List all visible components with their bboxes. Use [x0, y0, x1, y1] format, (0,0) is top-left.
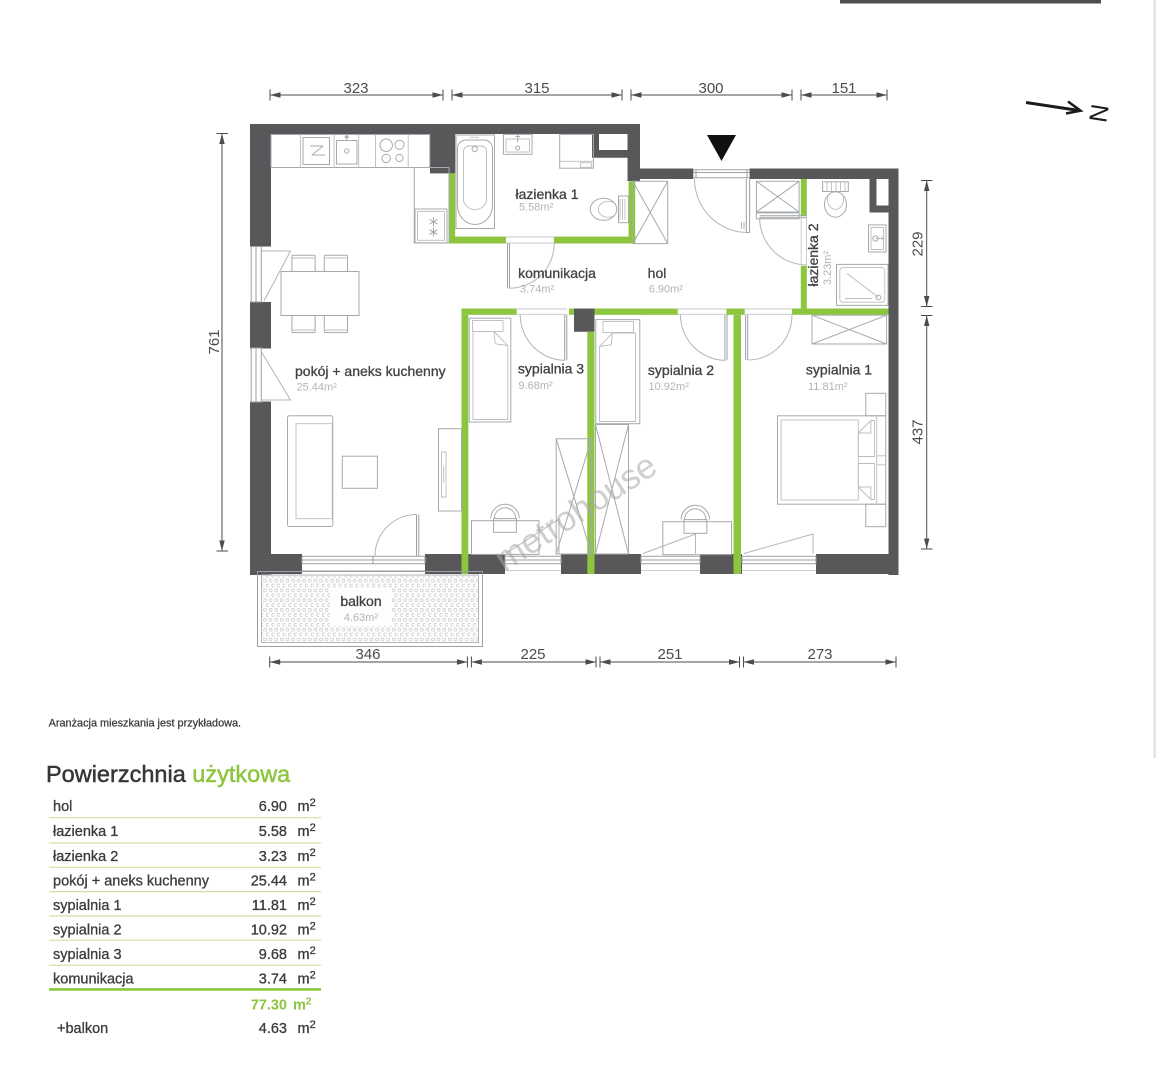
svg-text:10.92: 10.92	[251, 923, 287, 939]
svg-text:Aranżacja mieszkania jest przy: Aranżacja mieszkania jest przykładowa.	[49, 718, 242, 730]
svg-text:sypialnia 2: sypialnia 2	[648, 362, 714, 378]
svg-text:11.81: 11.81	[252, 898, 287, 914]
svg-text:sypialnia 3: sypialnia 3	[53, 947, 122, 963]
svg-text:komunikacja: komunikacja	[53, 972, 135, 988]
svg-text:5.58m²: 5.58m²	[519, 202, 554, 214]
svg-text:6.90m²: 6.90m²	[649, 284, 684, 296]
svg-text:315: 315	[524, 80, 549, 97]
svg-text:sypialnia 2: sypialnia 2	[53, 923, 122, 939]
svg-text:10.92m²: 10.92m²	[649, 381, 690, 393]
svg-text:łazienka 2: łazienka 2	[805, 223, 821, 286]
svg-text:4.63m²: 4.63m²	[344, 612, 379, 624]
svg-text:łazienka 1: łazienka 1	[53, 824, 118, 840]
svg-text:hol: hol	[53, 799, 72, 815]
svg-text:łazienka 2: łazienka 2	[53, 849, 118, 865]
svg-text:3.74m²: 3.74m²	[520, 284, 555, 296]
svg-text:25.44m²: 25.44m²	[297, 382, 338, 394]
svg-text:balkon: balkon	[340, 593, 381, 609]
svg-text:pokój + aneks kuchenny: pokój + aneks kuchenny	[53, 874, 210, 890]
svg-text:77.30: 77.30	[251, 998, 287, 1014]
svg-text:151: 151	[831, 80, 856, 97]
svg-text:273: 273	[807, 646, 832, 663]
svg-text:sypialnia 1: sypialnia 1	[806, 362, 872, 378]
svg-text:437: 437	[910, 419, 927, 444]
svg-text:3.23m²: 3.23m²	[822, 251, 834, 286]
svg-text:3.74: 3.74	[259, 972, 287, 988]
svg-text:łazienka 1: łazienka 1	[515, 186, 578, 202]
svg-text:229: 229	[910, 231, 927, 256]
svg-text:346: 346	[355, 646, 380, 663]
svg-text:11.81m²: 11.81m²	[808, 381, 848, 393]
svg-text:251: 251	[657, 646, 682, 663]
svg-text:komunikacja: komunikacja	[518, 265, 596, 281]
svg-text:6.90: 6.90	[259, 799, 287, 815]
svg-text:761: 761	[206, 329, 223, 354]
svg-text:25.44: 25.44	[251, 874, 287, 890]
svg-text:3.23: 3.23	[259, 849, 287, 865]
svg-text:+balkon: +balkon	[57, 1021, 108, 1037]
svg-text:323: 323	[343, 80, 368, 97]
svg-text:Powierzchnia użytkowa: Powierzchnia użytkowa	[46, 761, 291, 787]
svg-text:5.58: 5.58	[259, 824, 287, 840]
svg-text:225: 225	[520, 646, 545, 663]
svg-text:9.68: 9.68	[259, 947, 287, 963]
svg-text:hol: hol	[648, 265, 667, 281]
svg-text:4.63: 4.63	[259, 1021, 287, 1037]
svg-text:sypialnia 3: sypialnia 3	[518, 361, 584, 377]
svg-text:sypialnia 1: sypialnia 1	[53, 898, 122, 914]
svg-text:pokój + aneks kuchenny: pokój + aneks kuchenny	[295, 363, 446, 379]
svg-text:9.68m²: 9.68m²	[519, 380, 554, 392]
svg-text:300: 300	[698, 80, 723, 97]
